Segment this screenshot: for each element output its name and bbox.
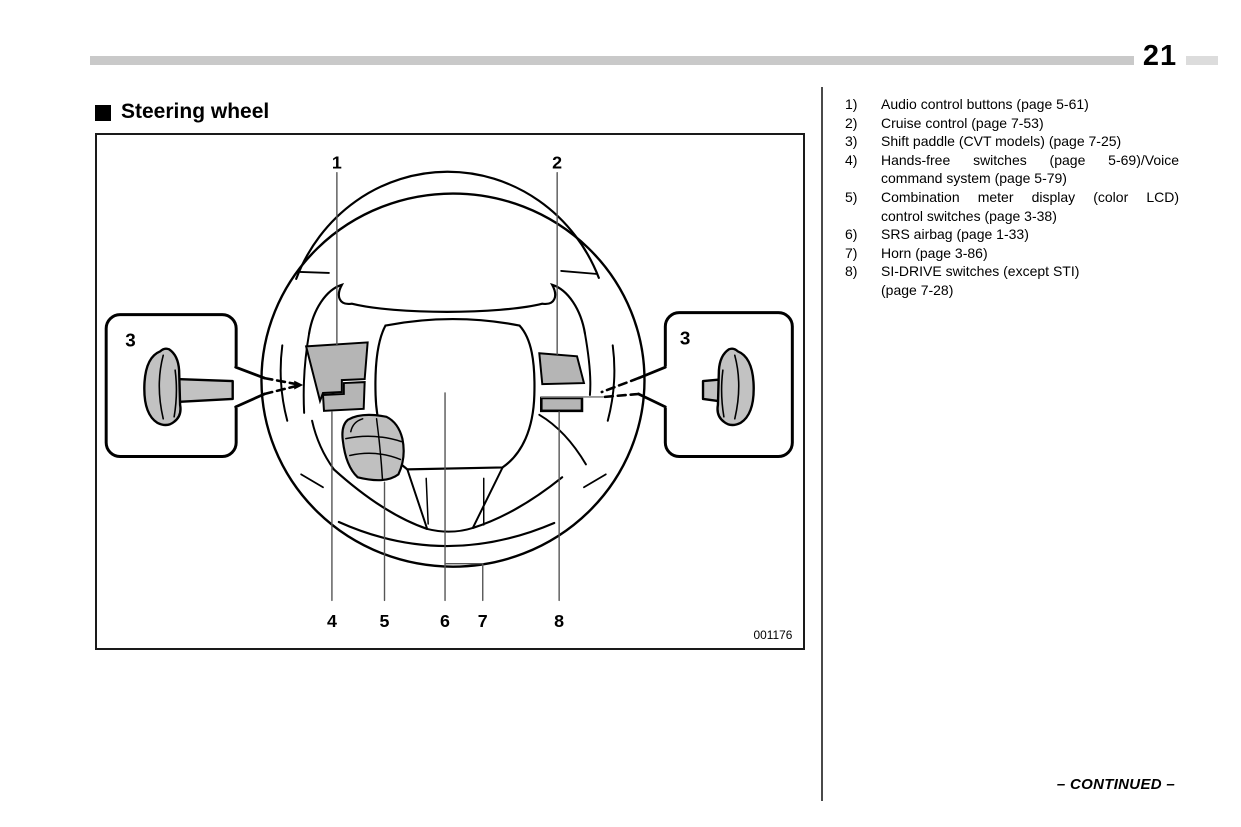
legend-item-number: 2) (845, 114, 881, 133)
legend-item-line: Horn (page 3-86) (881, 244, 1179, 263)
callout-box-right-notch (658, 366, 670, 408)
page-number: 21 (1134, 36, 1186, 76)
legend-item-line: Combination meter display (color LCD) (881, 188, 1179, 207)
section-heading: Steering wheel (95, 100, 269, 124)
legend-item-line: (page 7-28) (881, 281, 1179, 300)
legend-item-number: 4) (845, 151, 881, 188)
column-shroud-line-left (426, 478, 428, 524)
legend-item: 7)Horn (page 3-86) (845, 244, 1179, 263)
rim-inner-top-edge (296, 172, 599, 279)
meter-display-switches-panel (342, 415, 403, 480)
legend-item-text: Shift paddle (CVT models) (page 7-25) (881, 132, 1179, 151)
callout-label-2: 2 (552, 153, 562, 173)
legend-item-number: 3) (845, 132, 881, 151)
rim-tick-lower-right (584, 474, 606, 487)
si-drive-panel (541, 398, 582, 411)
right-spoke-lower-edge (539, 415, 586, 465)
legend-list: 1)Audio control buttons (page 5-61)2)Cru… (845, 95, 1179, 300)
legend-item-text: Horn (page 3-86) (881, 244, 1179, 263)
callout-label-1: 1 (332, 153, 342, 173)
steering-wheel-diagram: 1 2 3 3 4 5 6 7 8 001176 (97, 135, 803, 648)
rim-bottom-arc (339, 522, 554, 546)
legend-item-line: control switches (page 3-38) (881, 207, 1179, 226)
legend-item-text: Combination meter display (color LCD)con… (881, 188, 1179, 225)
black-square-icon (95, 105, 111, 121)
legend-item-number: 6) (845, 225, 881, 244)
legend-item-line: Cruise control (page 7-53) (881, 114, 1179, 133)
legend-item-number: 7) (845, 244, 881, 263)
legend-item: 3)Shift paddle (CVT models) (page 7-25) (845, 132, 1179, 151)
rim-tick-upper-left (300, 272, 329, 273)
legend-item-text: SI-DRIVE switches (except STI)(page 7-28… (881, 262, 1179, 299)
top-rule-shadow (1184, 56, 1218, 65)
legend-item: 4)Hands-free switches (page 5-69)/Voicec… (845, 151, 1179, 188)
dashed-pointer-right-bottom (604, 394, 639, 397)
legend-item-text: Cruise control (page 7-53) (881, 114, 1179, 133)
callout-label-3-left: 3 (125, 329, 135, 350)
left-spoke-lower-edge (312, 421, 334, 470)
top-rule (90, 56, 1180, 65)
legend-item: 6)SRS airbag (page 1-33) (845, 225, 1179, 244)
legend-item-line: command system (page 5-79) (881, 169, 1179, 188)
column-divider (821, 87, 823, 801)
legend-item-line: Shift paddle (CVT models) (page 7-25) (881, 132, 1179, 151)
rim-tick-lower-left (301, 474, 323, 487)
callout-label-7: 7 (478, 611, 488, 631)
rim-tick-upper-right (561, 271, 596, 274)
legend-item-line: Hands-free switches (page 5-69)/Voice (881, 151, 1179, 170)
pointer-arrowhead-left (294, 381, 303, 390)
continued-label: – CONTINUED – (960, 776, 1175, 793)
legend-item-text: Audio control buttons (page 5-61) (881, 95, 1179, 114)
dashed-pointer-right-top (602, 378, 639, 392)
legend-item-text: Hands-free switches (page 5-69)/Voicecom… (881, 151, 1179, 188)
paddle-left-stem (177, 379, 233, 402)
leader-line-7 (445, 564, 483, 601)
legend-item-line: SI-DRIVE switches (except STI) (881, 262, 1179, 281)
legend-item-number: 8) (845, 262, 881, 299)
legend-item: 1)Audio control buttons (page 5-61) (845, 95, 1179, 114)
callout-label-5: 5 (380, 611, 390, 631)
legend-item: 8)SI-DRIVE switches (except STI)(page 7-… (845, 262, 1179, 299)
callout-label-8: 8 (554, 611, 564, 631)
legend-item: 5)Combination meter display (color LCD)c… (845, 188, 1179, 225)
callout-label-3-right: 3 (680, 327, 690, 348)
legend-item-number: 1) (845, 95, 881, 114)
pad-right-side (585, 333, 590, 395)
callout-label-6: 6 (440, 611, 450, 631)
legend-item: 2)Cruise control (page 7-53) (845, 114, 1179, 133)
section-title: Steering wheel (121, 100, 269, 124)
cruise-control-panel (539, 353, 584, 384)
manual-page: 21 Steering wheel (0, 0, 1241, 827)
figure-box: 1 2 3 3 4 5 6 7 8 001176 (95, 133, 805, 650)
rim-inner-right-edge (608, 345, 615, 420)
legend-item-line: SRS airbag (page 1-33) (881, 225, 1179, 244)
legend-item-number: 5) (845, 188, 881, 225)
figure-code: 001176 (754, 628, 793, 642)
callout-label-4: 4 (327, 611, 337, 631)
legend-item-line: Audio control buttons (page 5-61) (881, 95, 1179, 114)
dashed-pointer-left-bottom (264, 386, 296, 394)
legend-item-text: SRS airbag (page 1-33) (881, 225, 1179, 244)
